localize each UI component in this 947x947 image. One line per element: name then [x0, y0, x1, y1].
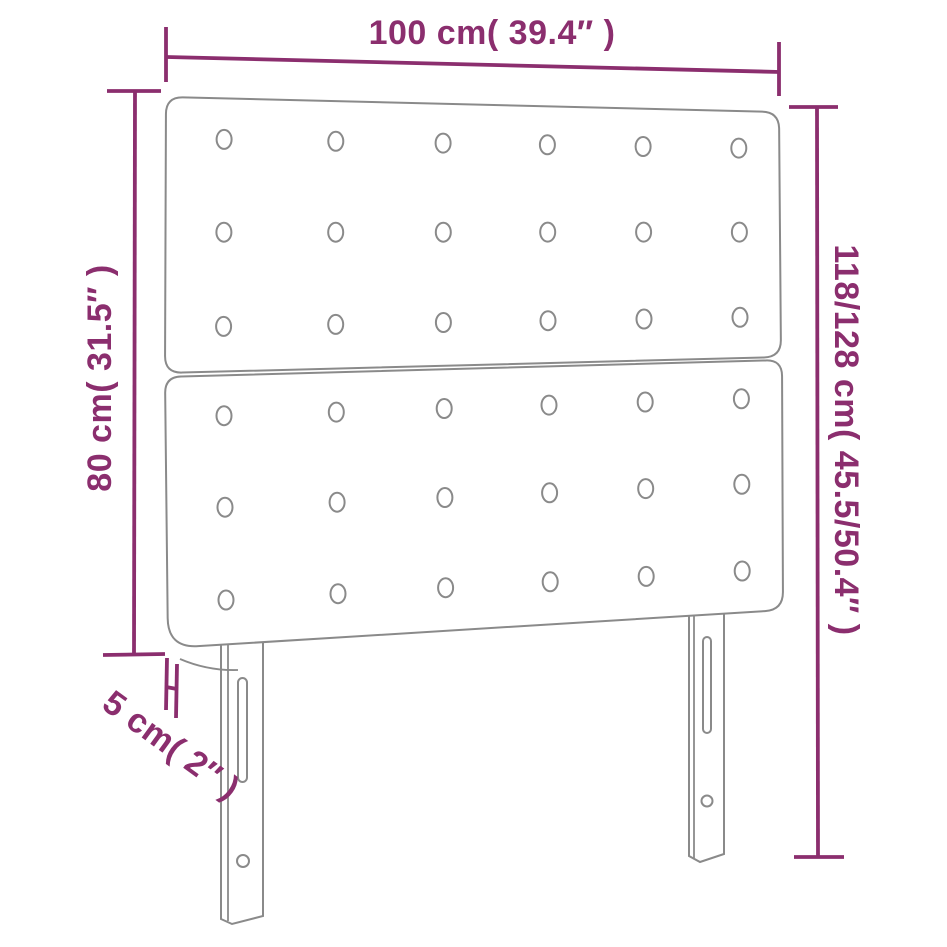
tufting-button-icon — [216, 223, 231, 242]
dimension-diagram: 100 cm( 39.4″ ) 80 cm( 31.5″ ) 118/128 c… — [0, 0, 947, 947]
tufting-button-icon — [540, 135, 555, 154]
tufting-button-icon — [436, 223, 451, 242]
tufting-button-icon — [437, 399, 452, 418]
tufting-button-icon — [639, 567, 654, 586]
headboard-diagram-svg: 100 cm( 39.4″ ) 80 cm( 31.5″ ) 118/128 c… — [0, 0, 947, 947]
tufting-button-icon — [541, 311, 556, 330]
tufting-button-icon — [732, 223, 747, 242]
height-right-dimension-label: 118/128 cm( 45.5/50.4″ ) — [827, 244, 865, 635]
tufting-button-icon — [436, 313, 451, 332]
tufting-button-icon — [329, 403, 344, 422]
tufting-button-icon — [638, 393, 653, 412]
tufting-button-icon — [219, 591, 234, 610]
tufting-button-icon — [734, 389, 749, 408]
tufting-button-icon — [328, 315, 343, 334]
headboard-drawing — [165, 97, 783, 924]
headboard-upper-panel — [165, 97, 781, 372]
tufting-button-icon — [328, 132, 343, 151]
tufting-button-icon — [218, 498, 233, 517]
tufting-button-icon — [217, 130, 232, 149]
tufting-button-icon — [331, 584, 346, 603]
tufting-button-icon — [542, 483, 557, 502]
right-leg-screw-hole-icon — [702, 796, 713, 807]
headboard-lower-panel — [165, 360, 783, 646]
height-left-dimension-label: 80 cm( 31.5″ ) — [81, 264, 119, 491]
tufting-button-icon — [731, 139, 746, 158]
tufting-button-icon — [638, 479, 653, 498]
width-dimension-label: 100 cm( 39.4″ ) — [369, 14, 616, 52]
tufting-button-icon — [543, 572, 558, 591]
tufting-button-icon — [734, 475, 749, 494]
tufting-button-icon — [436, 134, 451, 153]
right-leg — [689, 611, 724, 862]
tufting-button-icon — [735, 562, 750, 581]
tufting-button-icon — [637, 310, 652, 329]
tufting-button-icon — [542, 396, 557, 415]
tufting-button-icon — [330, 493, 345, 512]
tufting-button-icon — [328, 223, 343, 242]
tufting-button-icon — [733, 308, 748, 327]
left-leg-screw-hole-icon — [237, 855, 249, 867]
left-leg-slot — [238, 678, 247, 782]
thickness-dimension-mark — [166, 658, 177, 718]
tufting-button-icon — [216, 317, 231, 336]
tufting-button-icon — [636, 137, 651, 156]
tufting-button-icon — [636, 223, 651, 242]
tufting-button-icon — [437, 488, 452, 507]
tufting-button-icon — [540, 223, 555, 242]
right-leg-slot — [703, 637, 711, 733]
tufting-button-icon — [217, 406, 232, 425]
tufting-button-icon — [438, 578, 453, 597]
